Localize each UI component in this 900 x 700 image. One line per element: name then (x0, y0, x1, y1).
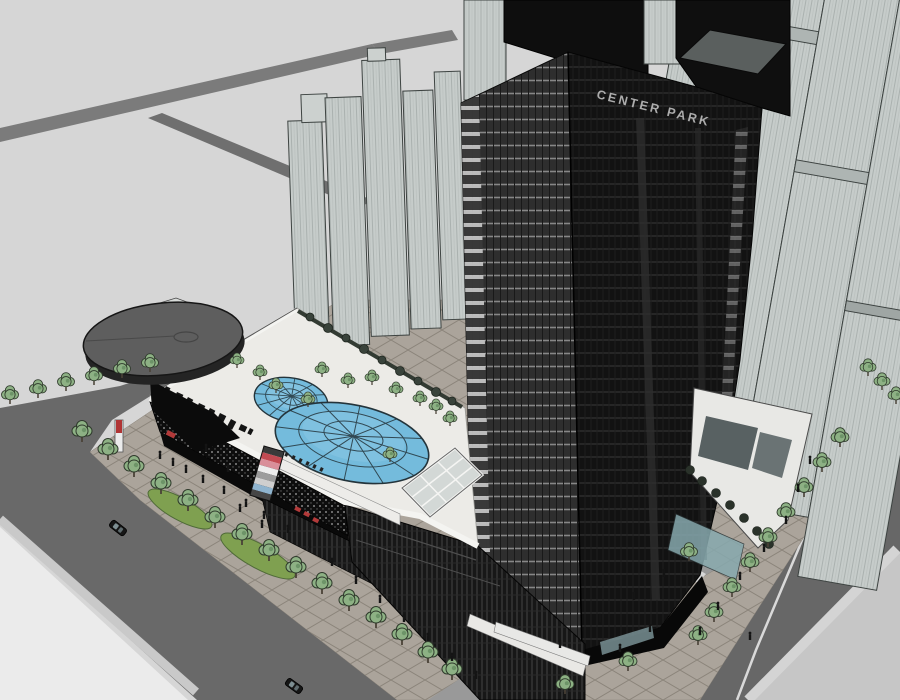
person (227, 464, 230, 472)
person (379, 595, 382, 603)
person (331, 558, 334, 566)
person (663, 569, 666, 577)
person (309, 540, 312, 548)
person (763, 544, 766, 552)
person (403, 614, 406, 622)
person (599, 614, 602, 622)
person (785, 516, 788, 524)
person (649, 624, 652, 632)
person (451, 653, 454, 661)
architectural-scene: CENTER PARK (0, 0, 900, 700)
person (427, 633, 430, 641)
person (797, 484, 800, 492)
person (749, 632, 752, 640)
massing-tower-rooftop (301, 94, 328, 123)
crown-gap-building (644, 0, 680, 64)
person (809, 456, 812, 464)
person (239, 504, 242, 512)
person (475, 671, 478, 679)
person (202, 475, 205, 483)
person (619, 644, 622, 652)
person (223, 486, 226, 494)
person (739, 572, 742, 580)
person (261, 520, 264, 528)
person (159, 451, 162, 459)
render-viewport: CENTER PARK (0, 0, 900, 700)
person (287, 525, 290, 533)
person (172, 458, 175, 466)
person (245, 499, 248, 507)
person (355, 576, 358, 584)
massing-tower-rooftop (367, 48, 385, 62)
person (717, 602, 720, 610)
person (185, 465, 188, 473)
person (205, 444, 208, 452)
person (263, 511, 266, 519)
person (633, 592, 636, 600)
person (559, 640, 562, 648)
person (699, 627, 702, 635)
